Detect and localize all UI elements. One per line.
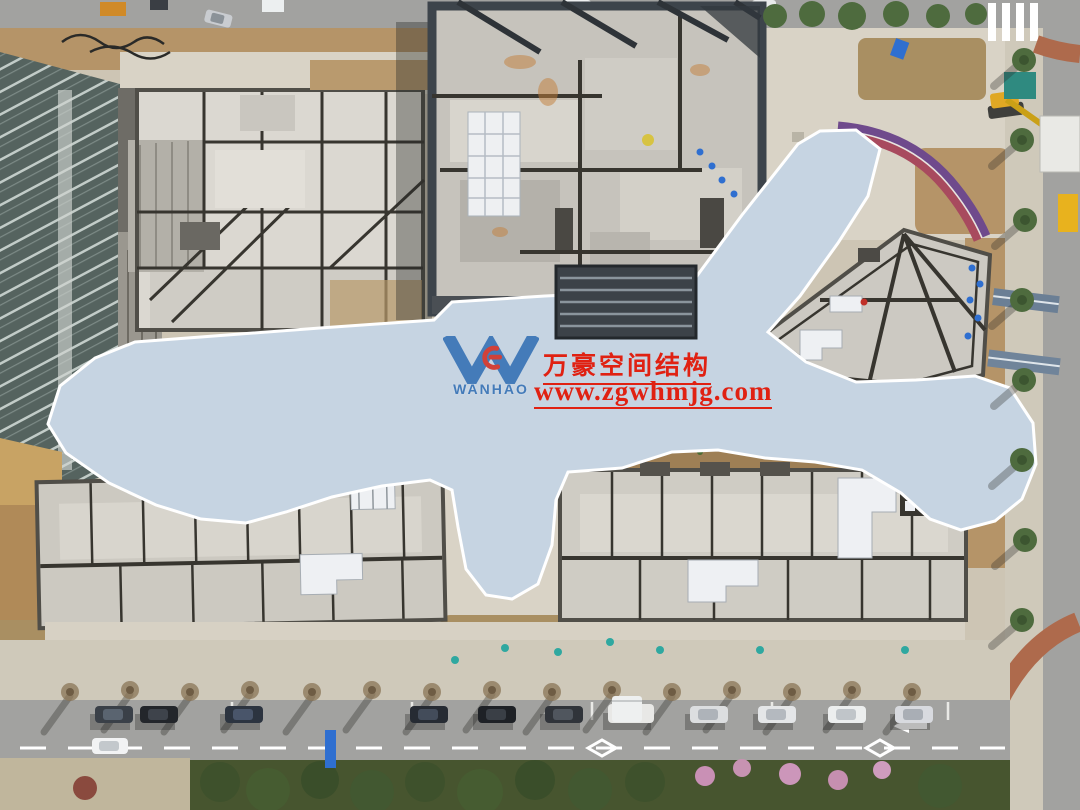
aerial-photo: WANHAO 万豪空间结构 www.zgwhmjg.com [0, 0, 1080, 810]
red-bike-lane-top [1036, 44, 1080, 54]
yellow-truck [1058, 194, 1078, 232]
moving-car [92, 738, 128, 754]
street-banner [325, 730, 336, 768]
white-shed [1040, 116, 1080, 172]
loader-vehicle [100, 2, 126, 16]
aerial-scene [0, 0, 1080, 810]
white-truck [612, 696, 642, 722]
walkway-strip [45, 622, 965, 640]
topleft-building [128, 60, 428, 332]
skylight-steel-frame [556, 266, 696, 338]
